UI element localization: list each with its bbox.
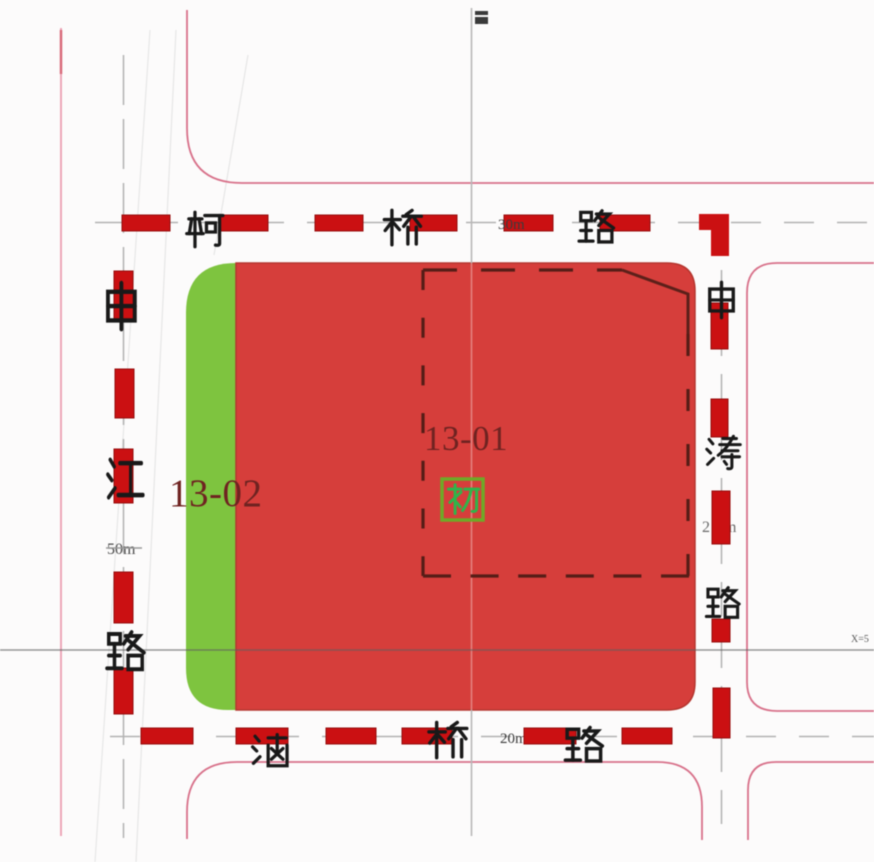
svg-text:X=5: X=5 <box>851 634 869 645</box>
svg-text:20m: 20m <box>500 731 527 747</box>
svg-text:50m: 50m <box>107 541 136 558</box>
svg-text:30m: 30m <box>498 217 525 233</box>
svg-text:13-02: 13-02 <box>169 472 263 515</box>
svg-text:13-01: 13-01 <box>424 419 508 458</box>
